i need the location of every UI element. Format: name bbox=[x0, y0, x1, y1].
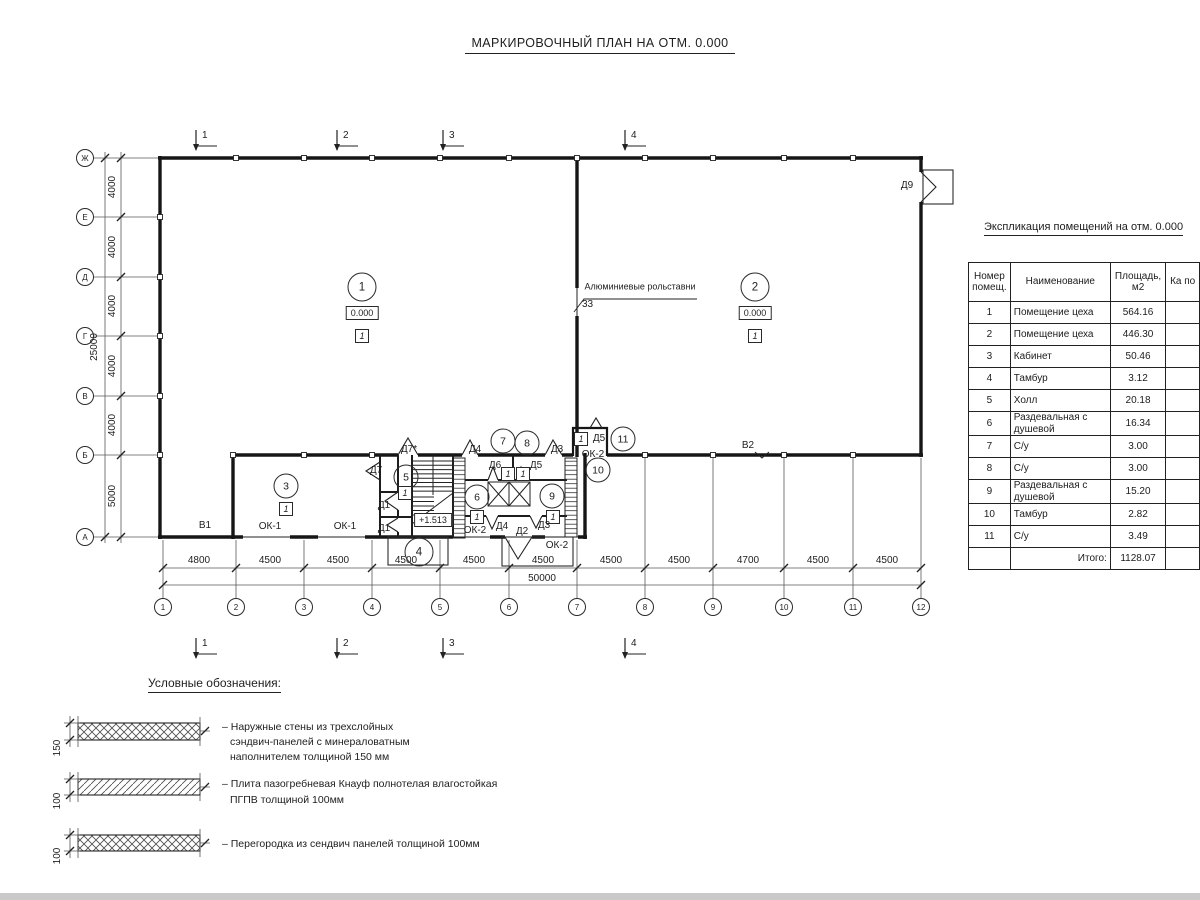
legend-thickness: 100 bbox=[53, 848, 63, 865]
room-area: 3.00 bbox=[1110, 458, 1166, 480]
legend-swatches bbox=[64, 716, 210, 858]
door-label: Д5 bbox=[593, 434, 605, 444]
schedule-row: 11С/у3.49 bbox=[969, 526, 1200, 548]
room-name: Раздевальная с душевой bbox=[1010, 412, 1110, 436]
door-label: Д9 bbox=[901, 181, 913, 191]
room-name: Тамбур bbox=[1010, 368, 1110, 390]
room-name: Помещение цеха bbox=[1010, 324, 1110, 346]
level-mark: 0.000 bbox=[739, 306, 772, 320]
schedule-row: 6Раздевальная с душевой16.34 bbox=[969, 412, 1200, 436]
schedule-row: 7С/у3.00 bbox=[969, 436, 1200, 458]
axis-bubble-bottom: 5 bbox=[431, 598, 449, 616]
door-label: Д5 bbox=[530, 461, 542, 471]
floor-type-mark: 1 bbox=[501, 467, 515, 481]
room-schedule-table: Номер помещ. Наименование Площадь, м2 Ка… bbox=[968, 262, 1200, 570]
door-label: Д3 bbox=[538, 521, 550, 531]
room-category bbox=[1166, 526, 1200, 548]
bottom-strip bbox=[0, 893, 1200, 900]
dim-label: 4000 bbox=[108, 176, 118, 198]
dim-label: 4000 bbox=[108, 295, 118, 317]
axis-bubble-left: Б bbox=[76, 446, 94, 464]
section-mark-label: 2 bbox=[343, 639, 349, 649]
room-number: 2 bbox=[741, 273, 770, 302]
gate-label: В1 bbox=[199, 521, 211, 531]
dim-total-label: 25000 bbox=[90, 333, 100, 361]
section-mark-label: 1 bbox=[202, 639, 208, 649]
axis-bubble-left: Е bbox=[76, 208, 94, 226]
drawing-sheet: МАРКИРОВОЧНЫЙ ПЛАН НА ОТМ. 0.000 1 2 3 4… bbox=[0, 0, 1200, 900]
window-label: ОК-1 bbox=[259, 522, 282, 532]
door-label: Д6 bbox=[489, 461, 501, 471]
room-no: 6 bbox=[969, 412, 1011, 436]
room-no: 10 bbox=[969, 504, 1011, 526]
door-label: Д7 bbox=[370, 466, 382, 476]
axis-bubble-bottom: 4 bbox=[363, 598, 381, 616]
dim-label: 4000 bbox=[108, 236, 118, 258]
room-area: 2.82 bbox=[1110, 504, 1166, 526]
schedule-row: 3Кабинет50.46 bbox=[969, 346, 1200, 368]
dim-label: 5000 bbox=[108, 485, 118, 507]
floor-type-mark: 1 bbox=[574, 432, 588, 446]
room-category bbox=[1166, 302, 1200, 324]
door-label: Д1 bbox=[378, 501, 390, 511]
room-category bbox=[1166, 412, 1200, 436]
axis-bubble-bottom: 3 bbox=[295, 598, 313, 616]
dim-label: 4800 bbox=[188, 556, 210, 566]
hatched-wall-right bbox=[565, 458, 577, 537]
room-area: 564.16 bbox=[1110, 302, 1166, 324]
door-label: Д7* bbox=[401, 445, 417, 455]
dim-label: 4500 bbox=[600, 556, 622, 566]
legend-item-text: сэндвич-панелей с минераловатным bbox=[230, 737, 410, 748]
dim-label: 4500 bbox=[327, 556, 349, 566]
schedule-row: 10Тамбур2.82 bbox=[969, 504, 1200, 526]
dim-label: 4500 bbox=[532, 556, 554, 566]
legend-thickness: 100 bbox=[53, 793, 63, 810]
legend-item-text: – Перегородка из сендвич панелей толщино… bbox=[222, 839, 480, 850]
window-label: ОК-2 bbox=[546, 541, 569, 551]
room-name: Кабинет bbox=[1010, 346, 1110, 368]
schedule-row: 1Помещение цеха564.16 bbox=[969, 302, 1200, 324]
level-mark: 0.000 bbox=[346, 306, 379, 320]
room-area: 3.12 bbox=[1110, 368, 1166, 390]
room-no: 2 bbox=[969, 324, 1011, 346]
floor-type-mark: 1 bbox=[355, 329, 369, 343]
legend-item-text: – Плита пазогребневая Кнауф полнотелая в… bbox=[222, 779, 497, 790]
gate-label: В2 bbox=[742, 441, 754, 451]
room-category bbox=[1166, 368, 1200, 390]
schedule-row: 5Холл20.18 bbox=[969, 390, 1200, 412]
axis-bubble-bottom: 6 bbox=[500, 598, 518, 616]
legend-item-text: наполнителем толщиной 150 мм bbox=[230, 752, 389, 763]
total-label: Итого: bbox=[1010, 548, 1110, 570]
room-name: С/у bbox=[1010, 436, 1110, 458]
annotation-roller-shutter-mark: 33 bbox=[582, 300, 593, 310]
section-mark-label: 4 bbox=[631, 639, 637, 649]
col-header-name: Наименование bbox=[1010, 263, 1110, 302]
legend-item-text: ПГПВ толщиной 100мм bbox=[230, 795, 344, 806]
room-number: 8 bbox=[515, 431, 540, 456]
level-mark-stair: +1.513 bbox=[414, 513, 452, 527]
floor-type-mark: 1 bbox=[279, 502, 293, 516]
section-mark-label: 1 bbox=[202, 131, 208, 141]
dim-label: 4500 bbox=[463, 556, 485, 566]
axis-bubble-bottom: 11 bbox=[844, 598, 862, 616]
axis-bubble-bottom: 1 bbox=[154, 598, 172, 616]
axis-bubble-bottom: 12 bbox=[912, 598, 930, 616]
col-header-area: Площадь, м2 bbox=[1110, 263, 1166, 302]
door-label: Д2 bbox=[516, 527, 528, 537]
empty-cell bbox=[1166, 548, 1200, 570]
schedule-title: Экспликация помещений на отм. 0.000 bbox=[984, 221, 1183, 236]
axis-bubble-left: Д bbox=[76, 268, 94, 286]
floor-type-mark: 1 bbox=[516, 467, 530, 481]
room-number: 10 bbox=[586, 458, 611, 483]
legend-thickness: 150 bbox=[53, 740, 63, 757]
room-area: 3.00 bbox=[1110, 436, 1166, 458]
dim-label: 4500 bbox=[876, 556, 898, 566]
room-name: Тамбур bbox=[1010, 504, 1110, 526]
room-no: 8 bbox=[969, 458, 1011, 480]
page-title: МАРКИРОВОЧНЫЙ ПЛАН НА ОТМ. 0.000 bbox=[465, 36, 734, 54]
col-header-number: Номер помещ. bbox=[969, 263, 1011, 302]
dim-label: 4500 bbox=[807, 556, 829, 566]
room-category bbox=[1166, 390, 1200, 412]
floor-type-mark: 1 bbox=[398, 486, 412, 500]
room-number: 3 bbox=[274, 474, 299, 499]
schedule-row: 8С/у3.00 bbox=[969, 458, 1200, 480]
door-swings bbox=[366, 172, 936, 559]
section-mark-label: 3 bbox=[449, 639, 455, 649]
outer-walls bbox=[158, 156, 923, 539]
room-name: С/у bbox=[1010, 458, 1110, 480]
dim-label: 4500 bbox=[668, 556, 690, 566]
room-category bbox=[1166, 480, 1200, 504]
dim-total-label: 50000 bbox=[528, 574, 556, 584]
room-number: 11 bbox=[611, 427, 636, 452]
room-number: 7 bbox=[491, 429, 516, 454]
annotation-roller-shutter: Алюминиевые рольставни bbox=[585, 283, 696, 292]
floor-type-mark: 1 bbox=[470, 510, 484, 524]
room-number: 9 bbox=[540, 484, 565, 509]
sheet-title-wrap: МАРКИРОВОЧНЫЙ ПЛАН НА ОТМ. 0.000 bbox=[0, 34, 1200, 54]
legend-item-text: – Наружные стены из трехслойных bbox=[222, 722, 393, 733]
room-area: 446.30 bbox=[1110, 324, 1166, 346]
room-category bbox=[1166, 346, 1200, 368]
col-header-category: Ка по bbox=[1166, 263, 1200, 302]
legend-title: Условные обозначения: bbox=[148, 676, 281, 693]
section-mark-label: 2 bbox=[343, 131, 349, 141]
schedule-row: 9Раздевальная с душевой15.20 bbox=[969, 480, 1200, 504]
room-name: Помещение цеха bbox=[1010, 302, 1110, 324]
room-number: 6 bbox=[465, 485, 490, 510]
room-area: 50.46 bbox=[1110, 346, 1166, 368]
room-category bbox=[1166, 504, 1200, 526]
schedule-header-row: Номер помещ. Наименование Площадь, м2 Ка… bbox=[969, 263, 1200, 302]
window-label: ОК-2 bbox=[582, 450, 605, 460]
empty-cell bbox=[969, 548, 1011, 570]
room-area: 15.20 bbox=[1110, 480, 1166, 504]
total-value: 1128.07 bbox=[1110, 548, 1166, 570]
room-number: 4 bbox=[405, 538, 434, 567]
schedule-total-row: Итого:1128.07 bbox=[969, 548, 1200, 570]
room-area: 16.34 bbox=[1110, 412, 1166, 436]
room-category bbox=[1166, 324, 1200, 346]
axis-bubble-left: Ж bbox=[76, 149, 94, 167]
window-label: ОК-1 bbox=[334, 522, 357, 532]
stairs-and-details bbox=[243, 288, 769, 537]
axis-bubble-bottom: 2 bbox=[227, 598, 245, 616]
room-no: 5 bbox=[969, 390, 1011, 412]
room-no: 11 bbox=[969, 526, 1011, 548]
room-no: 1 bbox=[969, 302, 1011, 324]
dim-label: 4500 bbox=[259, 556, 281, 566]
room-no: 7 bbox=[969, 436, 1011, 458]
room-area: 3.49 bbox=[1110, 526, 1166, 548]
dimension-ticks bbox=[101, 154, 925, 589]
axis-bubble-bottom: 8 bbox=[636, 598, 654, 616]
axis-bubble-left: В bbox=[76, 387, 94, 405]
axis-bubble-bottom: 7 bbox=[568, 598, 586, 616]
schedule-row: 2Помещение цеха446.30 bbox=[969, 324, 1200, 346]
room-name: Холл bbox=[1010, 390, 1110, 412]
section-mark-label: 4 bbox=[631, 131, 637, 141]
room-number: 1 bbox=[348, 273, 377, 302]
dim-label: 4000 bbox=[108, 355, 118, 377]
floor-type-mark: 1 bbox=[748, 329, 762, 343]
room-category bbox=[1166, 458, 1200, 480]
axis-bubble-bottom: 10 bbox=[775, 598, 793, 616]
door-label: Д1 bbox=[378, 524, 390, 534]
window-label: ОК-2 bbox=[464, 526, 487, 536]
dim-label: 4000 bbox=[108, 414, 118, 436]
room-no: 4 bbox=[969, 368, 1011, 390]
room-category bbox=[1166, 436, 1200, 458]
dim-label: 4700 bbox=[737, 556, 759, 566]
axis-bubble-left: А bbox=[76, 528, 94, 546]
section-mark-arrows bbox=[193, 144, 628, 659]
schedule-row: 4Тамбур3.12 bbox=[969, 368, 1200, 390]
room-no: 3 bbox=[969, 346, 1011, 368]
room-name: Раздевальная с душевой bbox=[1010, 480, 1110, 504]
door-label: Д4 bbox=[469, 445, 481, 455]
room-no: 9 bbox=[969, 480, 1011, 504]
axis-bubble-bottom: 9 bbox=[704, 598, 722, 616]
section-mark-label: 3 bbox=[449, 131, 455, 141]
door-label: Д4 bbox=[496, 522, 508, 532]
door-label: Д3 bbox=[551, 445, 563, 455]
room-area: 20.18 bbox=[1110, 390, 1166, 412]
room-name: С/у bbox=[1010, 526, 1110, 548]
